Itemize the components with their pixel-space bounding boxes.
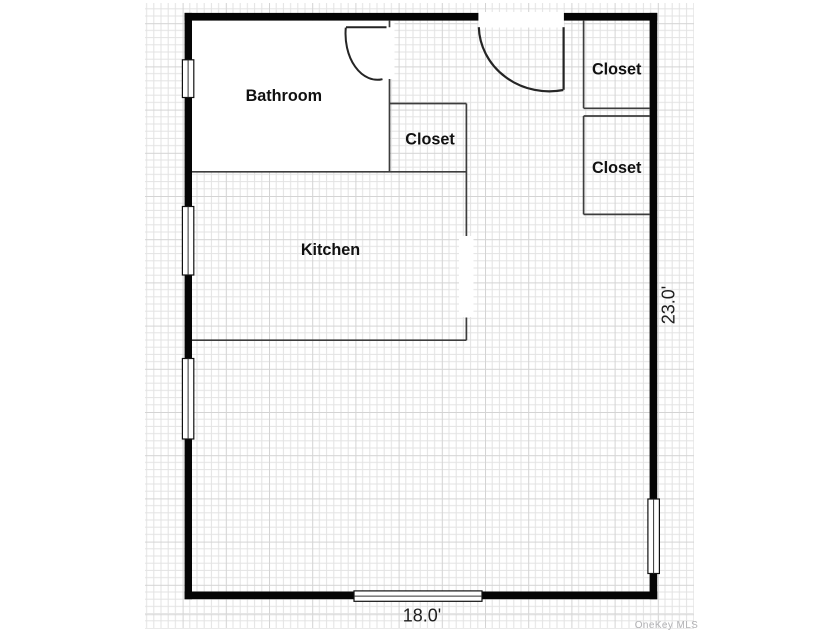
svg-text:Closet: Closet — [405, 130, 455, 148]
svg-text:Closet: Closet — [592, 159, 642, 177]
svg-text:Bathroom: Bathroom — [246, 87, 322, 105]
svg-text:OneKey MLS: OneKey MLS — [635, 620, 698, 630]
svg-text:18.0': 18.0' — [403, 605, 441, 625]
svg-text:23.0': 23.0' — [659, 286, 679, 324]
svg-text:Kitchen: Kitchen — [301, 241, 360, 259]
svg-text:Closet: Closet — [592, 60, 642, 78]
